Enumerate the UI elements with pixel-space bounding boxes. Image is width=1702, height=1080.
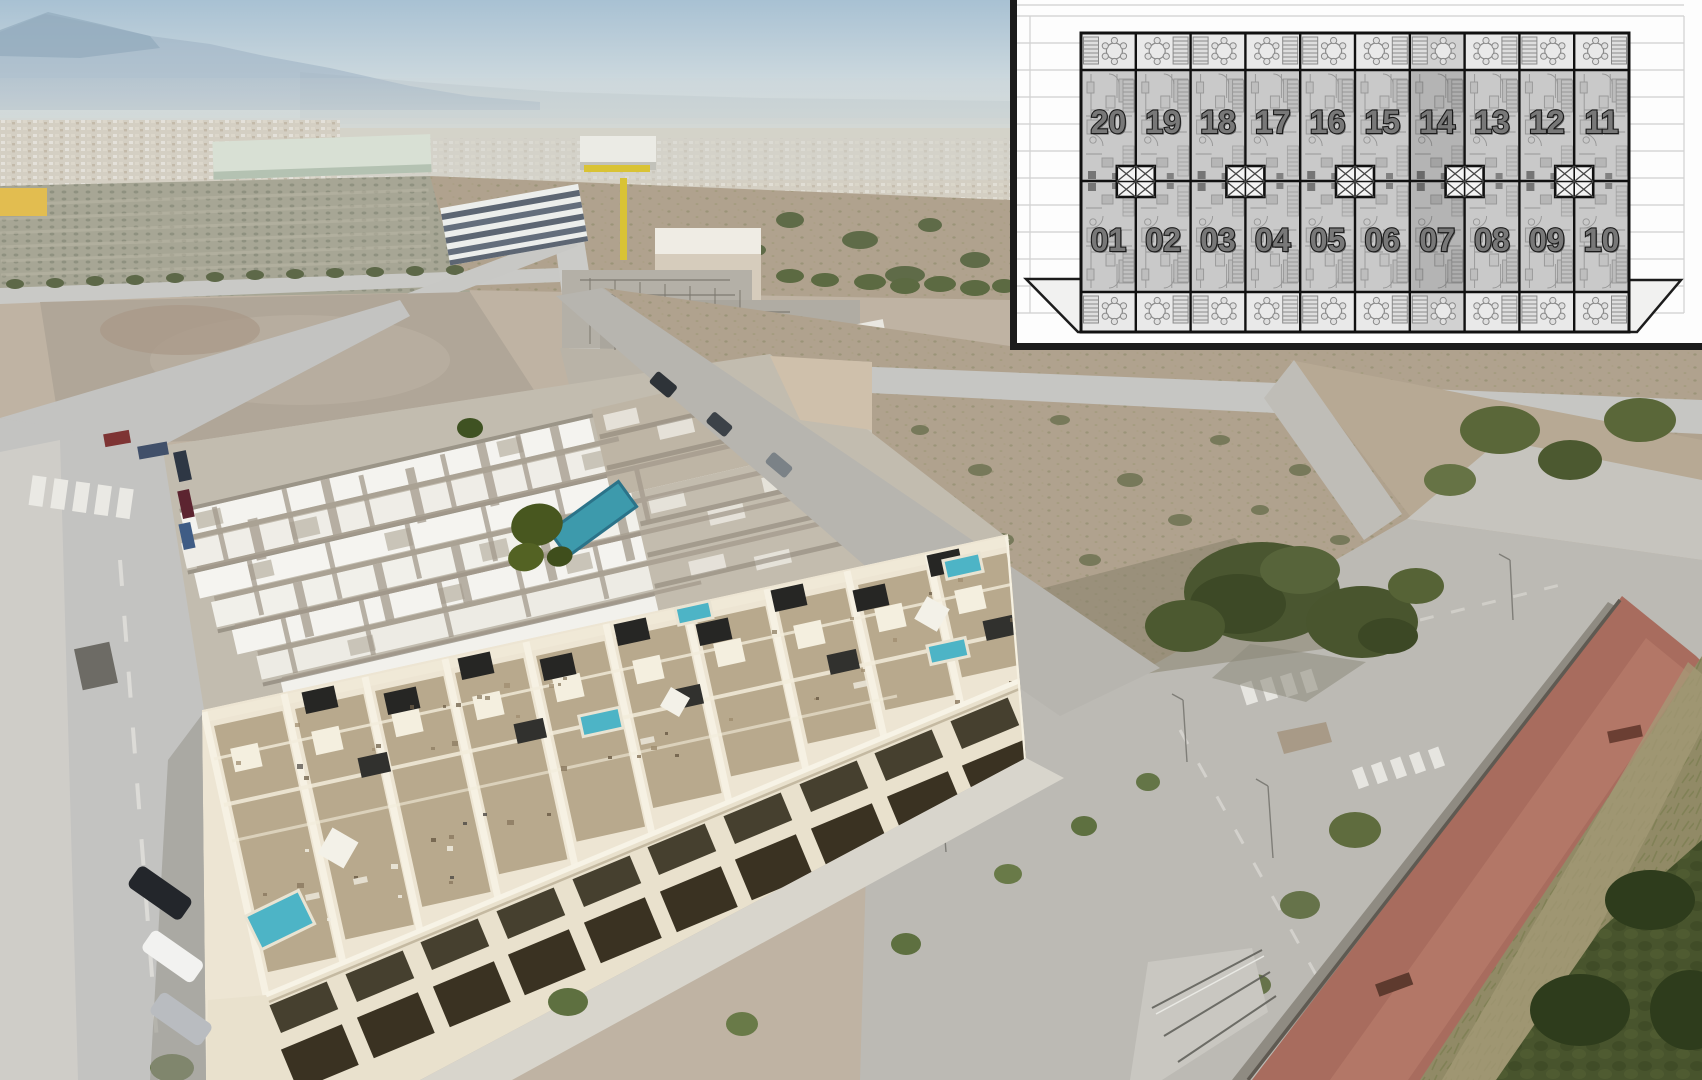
svg-text:03: 03 <box>1200 222 1236 258</box>
svg-text:06: 06 <box>1365 222 1401 258</box>
svg-text:02: 02 <box>1145 222 1181 258</box>
svg-text:16: 16 <box>1310 104 1346 140</box>
svg-text:17: 17 <box>1255 104 1291 140</box>
svg-text:08: 08 <box>1474 222 1510 258</box>
svg-text:04: 04 <box>1255 222 1291 258</box>
svg-text:01: 01 <box>1091 222 1127 258</box>
svg-text:11: 11 <box>1585 104 1619 140</box>
svg-text:20: 20 <box>1091 104 1127 140</box>
svg-text:12: 12 <box>1529 104 1565 140</box>
svg-text:07: 07 <box>1419 222 1455 258</box>
svg-text:19: 19 <box>1145 104 1181 140</box>
svg-text:18: 18 <box>1200 104 1236 140</box>
svg-text:09: 09 <box>1529 222 1565 258</box>
svg-text:13: 13 <box>1474 104 1510 140</box>
svg-text:15: 15 <box>1365 104 1401 140</box>
svg-text:05: 05 <box>1310 222 1346 258</box>
svg-text:10: 10 <box>1584 222 1620 258</box>
svg-text:14: 14 <box>1419 104 1455 140</box>
